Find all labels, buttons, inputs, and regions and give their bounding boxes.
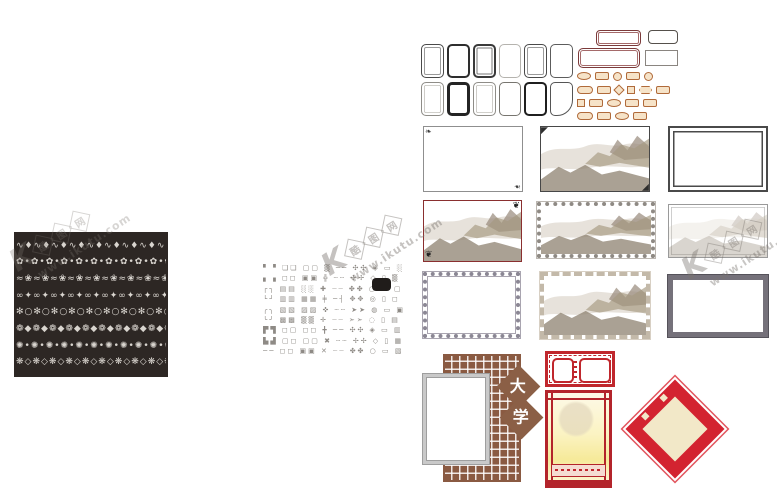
ornament-border-panel: ∿♦∿♦∿♦∿♦∿♦∿♦∿♦∿♦∿♦∿♦∿♦∿♦∿♦∿♦∿♦∿♦∿♦∿♦✿•✿•… (14, 232, 168, 377)
ornament-sampler-row: ── ◻◻ ▣▣ ✕ ┈┈ ✤✤ ○ ▭ ▧ (263, 347, 403, 356)
mini-frame (447, 82, 470, 116)
mini-frame (550, 44, 573, 78)
lattice-column (573, 359, 577, 378)
mini-frame (421, 44, 444, 78)
watermark-char-box: 网 (69, 210, 90, 231)
frame-maroon-landscape (423, 200, 522, 262)
university-char: 学 (513, 409, 529, 425)
ornament-sampler-row: ╭╮ ▧▧ ▨▨ ✜ ┄┄ ➤➤ ◍ ▭ ▣ (263, 306, 403, 315)
window-top-bar (548, 398, 609, 400)
mini-frame (473, 44, 496, 78)
asset-preview-canvas: ∿♦∿♦∿♦∿♦∿♦∿♦∿♦∿♦∿♦∿♦∿♦∿♦∿♦∿♦∿♦∿♦∿♦∿♦✿•✿•… (0, 0, 777, 494)
label-shape (656, 86, 670, 94)
banner-frame-ornate-small (596, 30, 641, 46)
mini-frame (447, 44, 470, 78)
mini-frame (524, 44, 547, 78)
watermark-char-box: 网 (381, 214, 402, 235)
diamond-border (626, 380, 725, 479)
window-base-bar (548, 480, 609, 485)
ornament-border-row: ✻○✻○✻○✻○✻○✻○✻○✻○✻○✻○✻○✻○✻○✻○✻○✻○✻○✻○ (16, 307, 166, 318)
lattice-window-small (552, 358, 574, 383)
mini-frame (524, 82, 547, 116)
label-shape (615, 112, 629, 120)
label-shape (577, 86, 593, 94)
diamond-notch (641, 412, 649, 420)
label-shape (627, 86, 635, 94)
mini-frame (421, 82, 444, 116)
label-shape (597, 86, 611, 94)
label-shape (639, 86, 652, 94)
black-swatch (372, 278, 391, 291)
mini-frame (499, 82, 522, 116)
white-photo-panel (423, 374, 489, 464)
ornament-border-row: ≈❀≈❀≈❀≈❀≈❀≈❀≈❀≈❀≈❀≈❀≈❀≈❀≈❀≈❀≈❀≈❀≈❀≈❀ (16, 274, 166, 285)
label-shape (607, 99, 621, 107)
banner-frame-plain-small (648, 30, 678, 44)
red-window-frame (545, 390, 612, 488)
banner-frame-ornate-large (578, 48, 640, 68)
frame-ornate-gray-landscape (537, 202, 655, 258)
ornament-border-row: ✿•✿•✿•✿•✿•✿•✿•✿•✿•✿•✿•✿•✿•✿•✿•✿•✿•✿• (16, 257, 166, 268)
mini-frame (550, 82, 573, 116)
frame-dark-band (668, 275, 768, 337)
label-shape (613, 72, 622, 81)
red-lattice-horizontal-frame (545, 351, 615, 387)
lattice-window-large (579, 358, 611, 383)
frame-double-line (668, 126, 768, 192)
ornament-sampler-row: └┘ ▥▥ ▦▦ ╪ ─┤ ✥✥ ◎ ▯ ◻ (263, 295, 403, 304)
mini-frame-grid (421, 44, 573, 116)
frame-corner-flourish (423, 126, 523, 192)
window-text-band (552, 464, 605, 477)
ornament-border-row: ❁◆❁◆❁◆❁◆❁◆❁◆❁◆❁◆❁◆❁◆❁◆❁◆❁◆❁◆❁◆❁◆❁◆❁◆ (16, 324, 166, 335)
diamond-inner-panel (642, 396, 707, 461)
red-diamond-frame (625, 379, 725, 479)
frame-thin-faint-landscape (668, 204, 768, 258)
label-shape (644, 72, 653, 81)
label-shape (577, 99, 585, 107)
ink-landscape (424, 201, 521, 261)
ornament-sampler-row: ▙▟ ▢◻ ▢▢ ✖ ┄┄ ✢✢ ◇ ▯ ▦ (263, 337, 403, 346)
label-shape (643, 99, 657, 107)
ink-landscape (541, 127, 649, 191)
label-shape (597, 112, 611, 120)
ink-landscape (669, 205, 767, 257)
ornament-border-row: ∞✦∞✦∞✦∞✦∞✦∞✦∞✦∞✦∞✦∞✦∞✦∞✦∞✦∞✦∞✦∞✦∞✦∞✦ (16, 291, 166, 302)
university-char: 大 (510, 378, 526, 394)
watermark-char-box: 图 (363, 226, 384, 247)
label-shape (626, 72, 640, 80)
label-shape-set (577, 72, 671, 120)
mini-frame (499, 44, 522, 78)
label-shape (633, 112, 647, 120)
ornament-border-row: ❋◇❋◇❋◇❋◇❋◇❋◇❋◇❋◇❋◇❋◇❋◇❋◇❋◇❋◇❋◇❋◇❋◇❋◇ (16, 357, 166, 368)
diamond-notch (659, 394, 667, 402)
banner-frame-plain-rect (645, 50, 678, 66)
label-shape (577, 112, 593, 120)
watermark-char-box: 酷 (344, 238, 365, 259)
frame-dotted-pattern (423, 272, 520, 338)
ornament-sampler-row: ▘▝ ❏❏ ▢▢ ▒ ── ✣✣ ◈ ▭ ░ (263, 264, 403, 273)
window-moon-motif (558, 401, 594, 437)
label-shape (613, 84, 624, 95)
ink-landscape (544, 276, 646, 335)
ornament-border-row: ✺•✺•✺•✺•✺•✺•✺•✺•✺•✺•✺•✺•✺•✺•✺•✺•✺•✺• (16, 341, 166, 352)
frame-dark-ornate-landscape (540, 126, 650, 192)
label-shape (625, 99, 639, 107)
label-shape (595, 72, 609, 80)
ornament-border-row: ∿♦∿♦∿♦∿♦∿♦∿♦∿♦∿♦∿♦∿♦∿♦∿♦∿♦∿♦∿♦∿♦∿♦∿♦ (16, 241, 166, 252)
ornament-sampler-row: ▛▜ ◻▢ ◻◻ ╋ ── ✣✣ ◈ ▭ ▥ (263, 326, 403, 335)
ornament-sampler-row: ╰╯ ▩▩ ▒▒ ✛ ┈┈ ➣➣ ◌ ▯ ▤ (263, 316, 403, 325)
label-shape (589, 99, 603, 107)
label-shape (577, 72, 591, 80)
ink-landscape (541, 206, 651, 254)
frame-lace-landscape (540, 272, 650, 339)
mini-frame (473, 82, 496, 116)
